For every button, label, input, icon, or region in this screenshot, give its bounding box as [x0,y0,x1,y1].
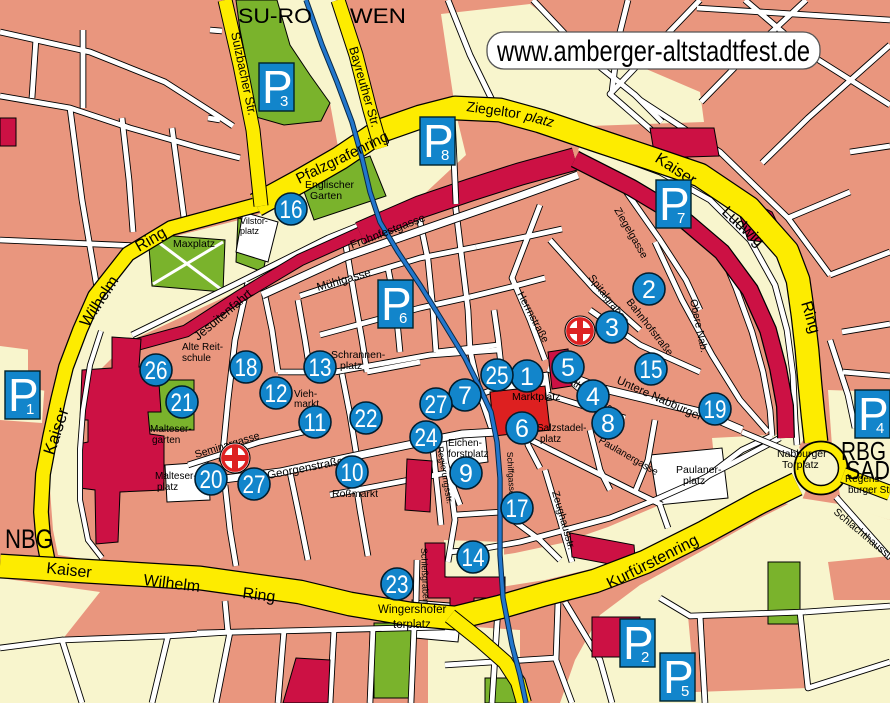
svg-text:Vilstor-: Vilstor- [240,216,268,226]
svg-text:23: 23 [386,571,409,599]
svg-text:26: 26 [145,357,168,385]
svg-text:1: 1 [26,401,34,418]
svg-text:8: 8 [441,147,449,164]
svg-text:10: 10 [341,459,364,487]
svg-text:21: 21 [171,389,194,417]
svg-text:2: 2 [641,649,649,666]
svg-text:7: 7 [458,382,472,410]
svg-text:SAD: SAD [846,455,890,485]
svg-text:garten: garten [152,435,180,446]
svg-text:Maxplatz: Maxplatz [173,238,215,250]
svg-text:platz: platz [157,482,178,493]
svg-text:27: 27 [243,471,266,499]
svg-text:platz: platz [540,434,561,445]
svg-text:Malteser-: Malteser- [155,471,197,482]
svg-text:Garten: Garten [310,190,342,202]
svg-text:15: 15 [640,356,663,384]
svg-text:8: 8 [601,410,615,438]
svg-text:platz: platz [340,360,362,372]
svg-text:5: 5 [681,683,689,700]
svg-text:Alte Reit-: Alte Reit- [182,342,223,353]
svg-text:platz: platz [240,226,260,236]
svg-text:12: 12 [265,380,288,408]
svg-text:Marktplatz: Marktplatz [512,391,560,403]
svg-text:Torplatz: Torplatz [782,459,819,471]
svg-text:16: 16 [280,196,303,224]
svg-text:4: 4 [876,420,884,437]
svg-text:19: 19 [704,396,727,424]
svg-text:SU-RO: SU-RO [238,4,312,28]
svg-text:6: 6 [399,310,407,327]
svg-text:5: 5 [561,354,575,382]
svg-text:3: 3 [280,93,288,110]
svg-text:22: 22 [355,405,378,433]
svg-text:2: 2 [642,276,656,304]
svg-text:17: 17 [506,495,529,523]
svg-text:11: 11 [304,409,327,437]
svg-text:WEN: WEN [350,4,406,28]
svg-text:Wingershofer: Wingershofer [378,604,447,616]
svg-text:20: 20 [200,466,223,494]
svg-text:4: 4 [586,383,600,411]
svg-text:www.amberger-altstadtfest.de: www.amberger-altstadtfest.de [496,35,810,68]
svg-text:Malteser-: Malteser- [150,424,192,435]
svg-text:schule: schule [182,353,211,364]
svg-text:24: 24 [415,424,438,452]
svg-text:18: 18 [235,354,258,382]
svg-text:9: 9 [459,460,473,488]
svg-text:platz: platz [683,475,705,487]
svg-text:1: 1 [520,363,534,391]
svg-text:14: 14 [462,544,485,572]
svg-text:Schießgraben: Schießgraben [419,548,431,604]
svg-text:burger Str.: burger Str. [848,485,890,496]
svg-text:Roßmarkt: Roßmarkt [332,488,378,500]
svg-text:25: 25 [486,362,509,390]
svg-text:NBG: NBG [5,524,53,554]
svg-text:13: 13 [309,354,332,382]
svg-text:torplatz: torplatz [393,619,431,631]
svg-text:3: 3 [605,314,619,342]
svg-text:27: 27 [425,391,448,419]
svg-text:Salzstadel-: Salzstadel- [537,423,586,434]
svg-text:7: 7 [677,210,685,227]
svg-text:6: 6 [515,415,529,443]
svg-text:Eichen-: Eichen- [448,438,482,449]
